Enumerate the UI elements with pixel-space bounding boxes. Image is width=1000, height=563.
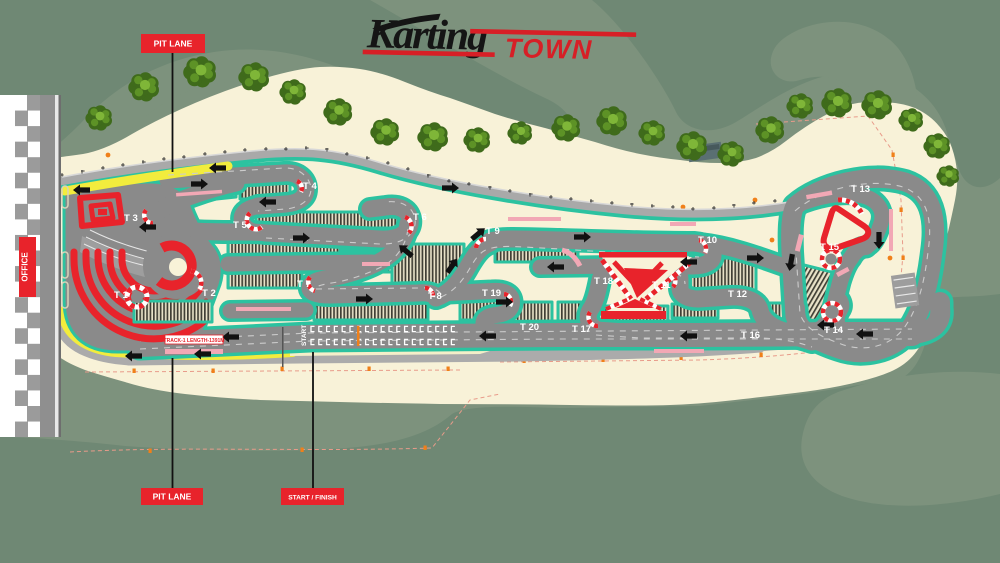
svg-text:T 20: T 20	[520, 322, 539, 333]
svg-text:T 2: T 2	[202, 288, 216, 299]
svg-text:T 4: T 4	[303, 181, 317, 192]
svg-text:T 6: T 6	[413, 212, 427, 223]
svg-text:T 16: T 16	[741, 330, 760, 341]
svg-text:PIT LANE: PIT LANE	[154, 39, 193, 49]
svg-text:T 13: T 13	[851, 184, 870, 195]
svg-text:T 3: T 3	[124, 213, 138, 224]
svg-text:T 7: T 7	[297, 279, 311, 290]
svg-text:T 9: T 9	[486, 226, 500, 237]
svg-text:T 17: T 17	[572, 324, 591, 335]
svg-text:START / FINISH: START / FINISH	[288, 495, 337, 502]
svg-text:T 10: T 10	[698, 235, 717, 246]
svg-text:T 18: T 18	[594, 276, 613, 287]
svg-text:T 1: T 1	[114, 290, 128, 301]
svg-text:T 5: T 5	[233, 220, 247, 231]
svg-text:TRACK-1 LENGTH-1391M: TRACK-1 LENGTH-1391M	[164, 338, 225, 344]
svg-text:T 19: T 19	[482, 288, 501, 299]
svg-text:OFFICE: OFFICE	[21, 252, 30, 282]
svg-text:TOWN: TOWN	[505, 33, 594, 65]
svg-text:PIT LANE: PIT LANE	[153, 492, 192, 502]
svg-text:T 11: T 11	[652, 280, 671, 291]
svg-text:START: START	[301, 325, 308, 346]
svg-text:T 12: T 12	[728, 289, 747, 300]
svg-text:T 15: T 15	[820, 242, 840, 253]
svg-text:T 14: T 14	[824, 325, 844, 336]
svg-text:T 8: T 8	[428, 291, 442, 302]
